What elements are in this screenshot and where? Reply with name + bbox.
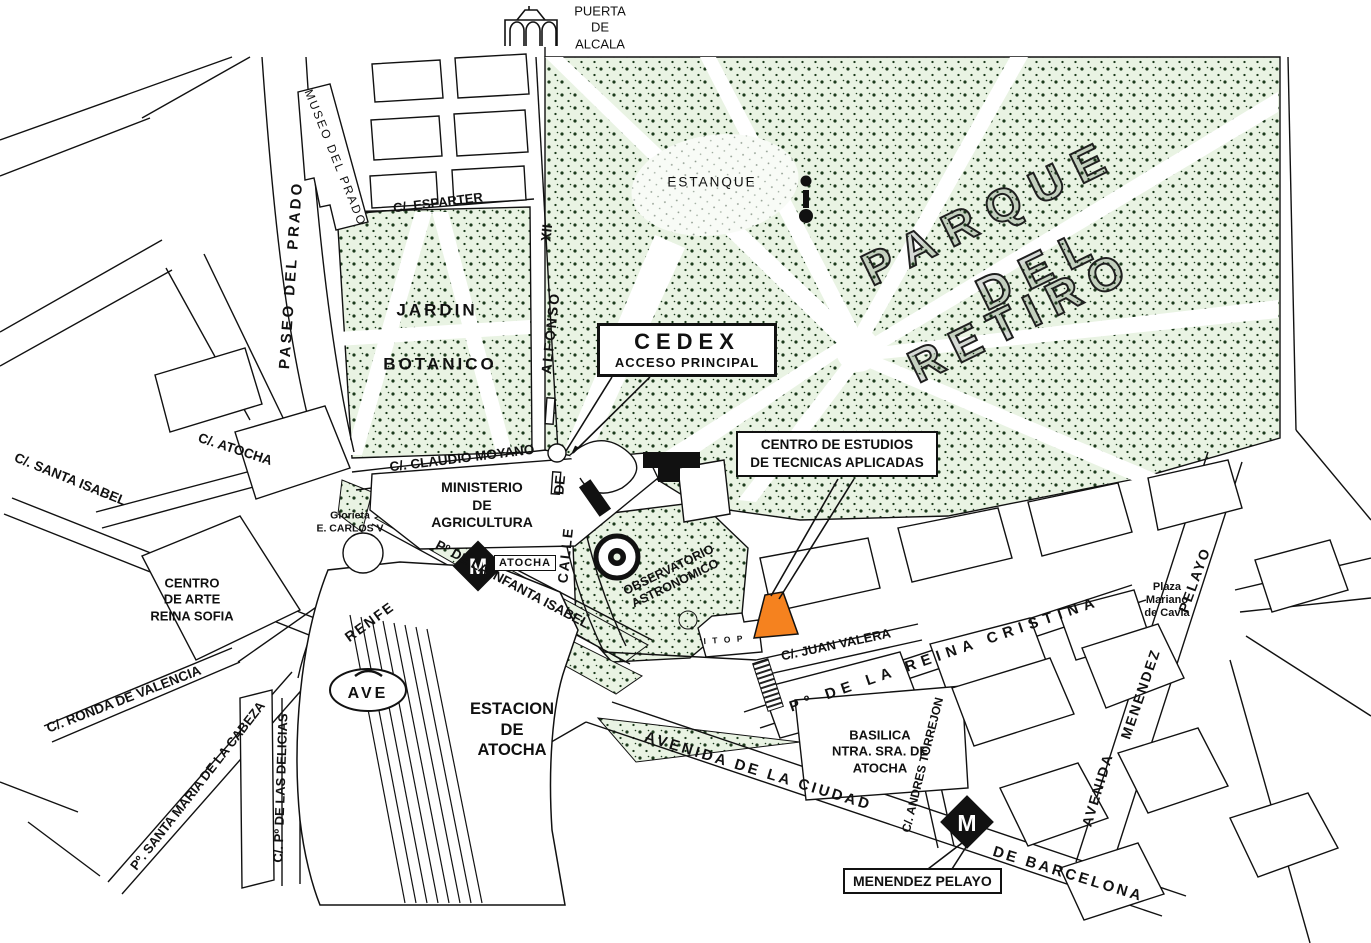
puerta-de-alcala-icon	[505, 6, 557, 46]
cedex-callout-box: CEDEX ACCESO PRINCIPAL	[597, 323, 777, 377]
cedex-title: CEDEX	[600, 326, 774, 355]
cedex-entrance-circle	[548, 444, 566, 462]
cedex-subtitle: ACCESO PRINCIPAL	[600, 355, 774, 370]
basilica-building	[795, 686, 968, 800]
menendez-pelayo-callout-box: MENENDEZ PELAYO	[843, 868, 1002, 894]
observatorio-dome-icon	[596, 536, 638, 578]
metro-icon-menendez-pelayo: M	[940, 795, 994, 849]
ave-logo	[330, 669, 406, 711]
itop-building	[698, 613, 762, 657]
atocha-station	[297, 562, 578, 905]
atocha-metro-label: ATOCHA	[494, 555, 556, 571]
svg-text:M: M	[469, 554, 487, 579]
centro-estudios-callout-box: CENTRO DE ESTUDIOS DE TECNICAS APLICADAS	[736, 431, 938, 477]
svg-text:M: M	[957, 810, 976, 836]
glorieta-carlos-v	[343, 533, 383, 573]
cedex-access-map: M M PUERTA DE ALCALA PARQUE DEL RETIRO E…	[0, 0, 1371, 943]
reina-sofia-building	[142, 516, 300, 660]
map-geometry: M M	[0, 0, 1371, 943]
museo-del-prado-building	[298, 84, 368, 230]
